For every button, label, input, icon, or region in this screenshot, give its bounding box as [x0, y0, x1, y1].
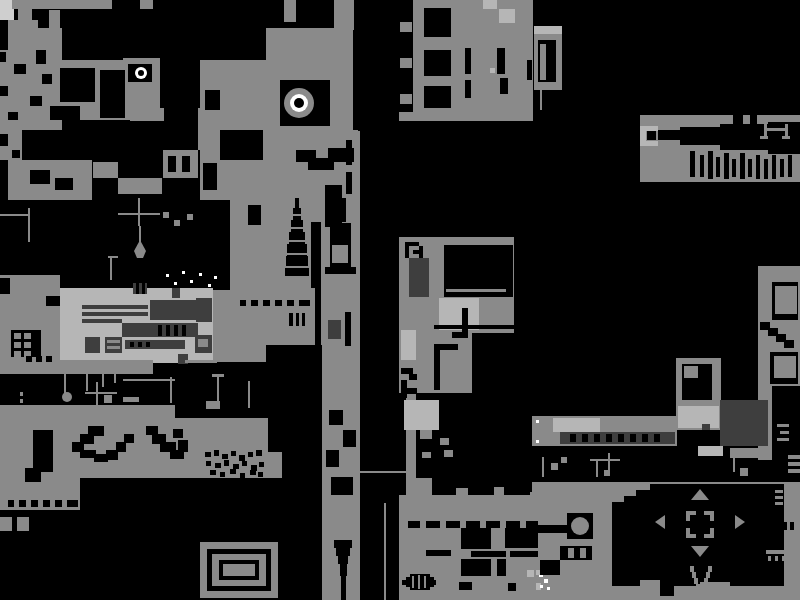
world-map — [0, 0, 800, 600]
world-map-canvas — [0, 0, 800, 600]
